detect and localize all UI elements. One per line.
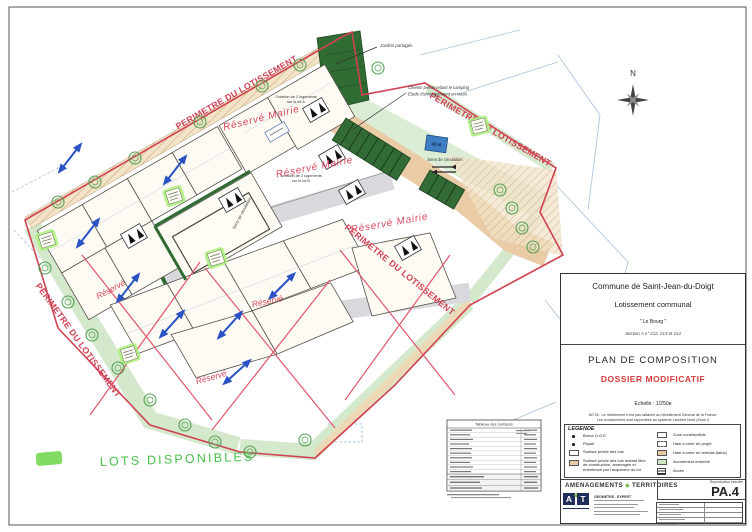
surface-table-title: Tableau des surfaces [475, 422, 513, 427]
legend-item: Accès [673, 469, 739, 473]
address-line [594, 500, 644, 501]
address-line [594, 507, 634, 508]
plan-title: PLAN DE COMPOSITION [561, 355, 745, 366]
chemin-label-1: Chemin piéton reliant le camping [408, 85, 470, 90]
tan-box-icon [657, 450, 667, 456]
divider [561, 344, 745, 345]
legend: LEGENDE Borne O.G.E. Piquet Surface priv… [564, 424, 741, 478]
creation-a-1: Création de 2 logements [275, 95, 316, 99]
revision-cell [659, 519, 685, 520]
jardins-label: Jardins partagés [379, 43, 413, 48]
diamond-icon: ◆ [625, 483, 630, 489]
profession-label: GEOMETRE - EXPERT [594, 495, 631, 499]
small-note [516, 430, 530, 431]
piquet-icon [572, 443, 575, 446]
sheet-number: PA.4 [711, 484, 739, 499]
legend-item: Piquet [583, 442, 649, 446]
cadastral-section: Section A n° 212, 213 et 214 [561, 331, 745, 336]
revision-cell [659, 524, 677, 525]
small-note-2 [516, 433, 527, 434]
blue-area-tag: 40 M [425, 135, 448, 153]
commune-title: Commune de Saint-Jean-du-Doigt [561, 282, 745, 291]
legend-item: Zone constructible [673, 433, 739, 437]
surface-table: Tableau des surfaces [447, 420, 541, 498]
legend-title: LEGENDE [568, 426, 595, 432]
dashed-box-icon [657, 441, 667, 447]
plan-subtitle: DOSSIER MODIFICATIF [561, 374, 745, 384]
revision-cell [659, 509, 683, 510]
legend-item: Surface privée des lots [583, 450, 649, 454]
legend-item: Accotement enherbé [673, 460, 739, 464]
creation-b-2: sur le lot B [292, 179, 310, 183]
legend-item: Borne O.G.E. [583, 434, 649, 438]
revision-table [656, 502, 743, 523]
borne-icon [572, 435, 575, 438]
legend-item: Surface privée des lots restant libre de… [583, 459, 647, 472]
logo-letter-t: T [577, 493, 589, 505]
operation-title: Lotissement communal [561, 300, 745, 309]
white-box-icon [569, 450, 579, 456]
address-line [594, 504, 638, 505]
lieu-dit: " Le Bourg " [561, 319, 745, 325]
nota-line-2: Les coordonnées sont rapportées au systè… [561, 418, 745, 422]
white-box-icon [657, 432, 667, 438]
address-line [594, 511, 648, 512]
firm-logo: A ◆ T [563, 493, 593, 519]
sheet-number-cell: Reproduction interdite PA.4 [657, 479, 745, 500]
legend-item: Haie à créer en projet [673, 442, 739, 446]
tan-box-icon [569, 460, 579, 466]
nota-line-1: NOTA : Le nivellement n'est pas rattaché… [561, 413, 745, 417]
north-label: N [630, 69, 636, 78]
plan-sheet: 40 M PERIMETRE DU LOTISSEMENT PERIMETRE … [0, 0, 752, 532]
revision-cell [659, 514, 681, 515]
green-box-icon [657, 459, 667, 465]
chemin-label-2: Etude d'aménagement en cours [408, 92, 468, 97]
firm-name-left: AMENAGEMENTS [565, 482, 623, 489]
title-block: Commune de Saint-Jean-du-Doigt Lotisseme… [560, 273, 746, 524]
logo-subtext [563, 508, 589, 509]
legend-item: Haie à créer en remblai (talus) [673, 451, 739, 455]
address-line [594, 514, 640, 515]
scale-label: Echelle : 1/250e [561, 401, 745, 407]
sens-circulation-1: Sens de circulation [427, 157, 463, 162]
hatch-icon [657, 468, 666, 475]
revision-cell [659, 504, 679, 505]
